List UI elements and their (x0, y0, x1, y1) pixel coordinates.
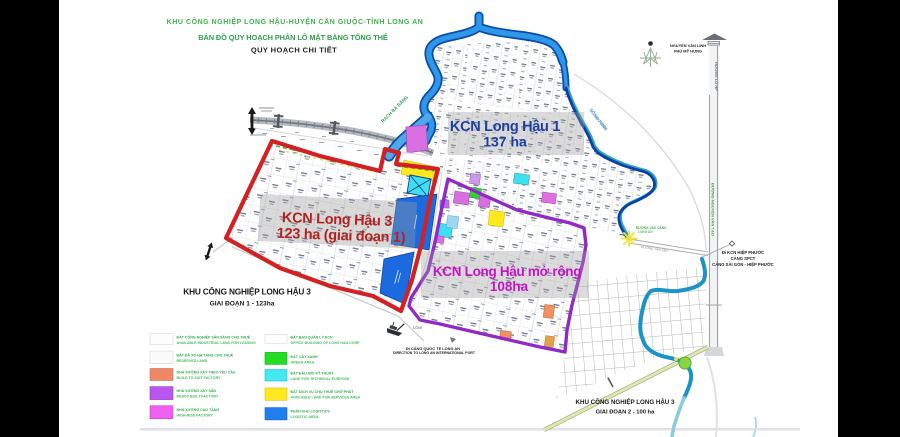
svg-text:Đi KCN HIỆP PHƯỚC: Đi KCN HIỆP PHƯỚC (722, 250, 764, 255)
svg-text:CẢNG SPCT: CẢNG SPCT (731, 256, 756, 261)
svg-text:KHU CÔNG NGHIỆP LONG HẬU 3: KHU CÔNG NGHIỆP LONG HẬU 3 (576, 398, 675, 406)
svg-text:ĐẤT CÂY XANH: ĐẤT CÂY XANH (291, 354, 318, 359)
svg-text:AVAILABLE LAND FOR SERVICES AR: AVAILABLE LAND FOR SERVICES AREA (291, 396, 361, 400)
svg-text:PHÚ MỸ HƯNG: PHÚ MỸ HƯNG (674, 49, 702, 54)
svg-text:NHÀ XƯỞNG XÂY SẴN: NHÀ XƯỞNG XÂY SẴN (177, 388, 217, 393)
svg-text:BUILD TO SUIT FACTORY: BUILD TO SUIT FACTORY (177, 376, 222, 380)
svg-text:ĐẤT BAN QUẢN LÝ KCN: ĐẤT BAN QUẢN LÝ KCN (291, 335, 334, 340)
svg-text:RESERVED LAND: RESERVED LAND (177, 359, 208, 363)
svg-text:NHÀ XƯỞNG XÂY THEO YÊU CẦU: NHÀ XƯỞNG XÂY THEO YÊU CẦU (177, 370, 236, 375)
svg-text:LAND FOR TECHNICAL PURPOSE: LAND FOR TECHNICAL PURPOSE (291, 377, 350, 381)
svg-text:ĐẤT ĐÃ XD HẠ TẦNG CHO THUÊ: ĐẤT ĐÃ XD HẠ TẦNG CHO THUÊ (177, 353, 234, 358)
svg-text:GIAI ĐOẠN 1 - 123ha: GIAI ĐOẠN 1 - 123ha (210, 301, 275, 308)
svg-text:KHU CÔNG NGHIỆP LONG HẬU 3: KHU CÔNG NGHIỆP LONG HẬU 3 (183, 286, 311, 297)
svg-text:ĐẤT DỊCH VỤ CHO THUÊ CHỜ PHÁT: ĐẤT DỊCH VỤ CHO THUÊ CHỜ PHÁT (291, 389, 355, 394)
svg-text:HIGH-RISE FACTORY: HIGH-RISE FACTORY (177, 413, 214, 417)
svg-text:LOGISTIC AREA: LOGISTIC AREA (291, 415, 319, 419)
svg-text:ĐƯỜNG NGUYỄN VĂN TẠO: ĐƯỜNG NGUYỄN VĂN TẠO (711, 183, 716, 236)
svg-text:LONG AN: LONG AN (638, 230, 653, 234)
svg-text:108ha: 108ha (490, 279, 529, 294)
svg-text:LÔ05: LÔ05 (413, 325, 422, 330)
svg-text:NGUYỄN VĂN LINH: NGUYỄN VĂN LINH (670, 43, 706, 48)
svg-text:137 ha: 137 ha (483, 134, 527, 150)
svg-text:BẢN ĐỒ QUY HOẠCH PHÂN LÔ MẶT B: BẢN ĐỒ QUY HOẠCH PHÂN LÔ MẶT BẰNG TỔNG T… (198, 32, 388, 42)
svg-text:QUY HOẠCH CHI TIẾT: QUY HOẠCH CHI TIẾT (251, 45, 337, 55)
svg-text:HƯƠNG LỘ HP: HƯƠNG LỘ HP (714, 62, 719, 91)
svg-text:GIAI ĐOẠN 2 - 100 ha: GIAI ĐOẠN 2 - 100 ha (596, 410, 655, 416)
svg-text:Đi CẢNG QUỐC TẾ LONG AN: Đi CẢNG QUỐC TẾ LONG AN (406, 346, 460, 351)
svg-text:NHÀ XƯỞNG CAO TẦNG: NHÀ XƯỞNG CAO TẦNG (177, 407, 220, 412)
svg-text:DIRECTION TO LONG AN INTERNATI: DIRECTION TO LONG AN INTERNATIONAL PORT (393, 351, 476, 355)
svg-text:AVAILABLE INDUSTRIAL LAND FOR: AVAILABLE INDUSTRIAL LAND FOR LEASING (177, 341, 256, 345)
svg-text:CẢNG SÀI GÒN - HIỆP PHƯỚC: CẢNG SÀI GÒN - HIỆP PHƯỚC (712, 262, 774, 267)
svg-text:GREEN AREA: GREEN AREA (291, 360, 315, 364)
svg-text:OFFICE BUILDING OF LONG HAU CO: OFFICE BUILDING OF LONG HAU CORP (291, 341, 361, 345)
svg-text:PHÂN KHU LOGISTICS: PHÂN KHU LOGISTICS (291, 409, 331, 414)
svg-text:ĐẤT ĐẦU MỐI KỸ THUẬT: ĐẤT ĐẦU MỐI KỸ THUẬT (291, 371, 335, 376)
svg-text:READY BUILT FACTORY: READY BUILT FACTORY (177, 394, 219, 398)
svg-text:ĐẤT CÔNG NGHIỆP SẴN SÀNG CHO T: ĐẤT CÔNG NGHIỆP SẴN SÀNG CHO THUÊ (177, 335, 251, 340)
svg-text:KCN Long Hậu mở rộng: KCN Long Hậu mở rộng (433, 264, 581, 279)
